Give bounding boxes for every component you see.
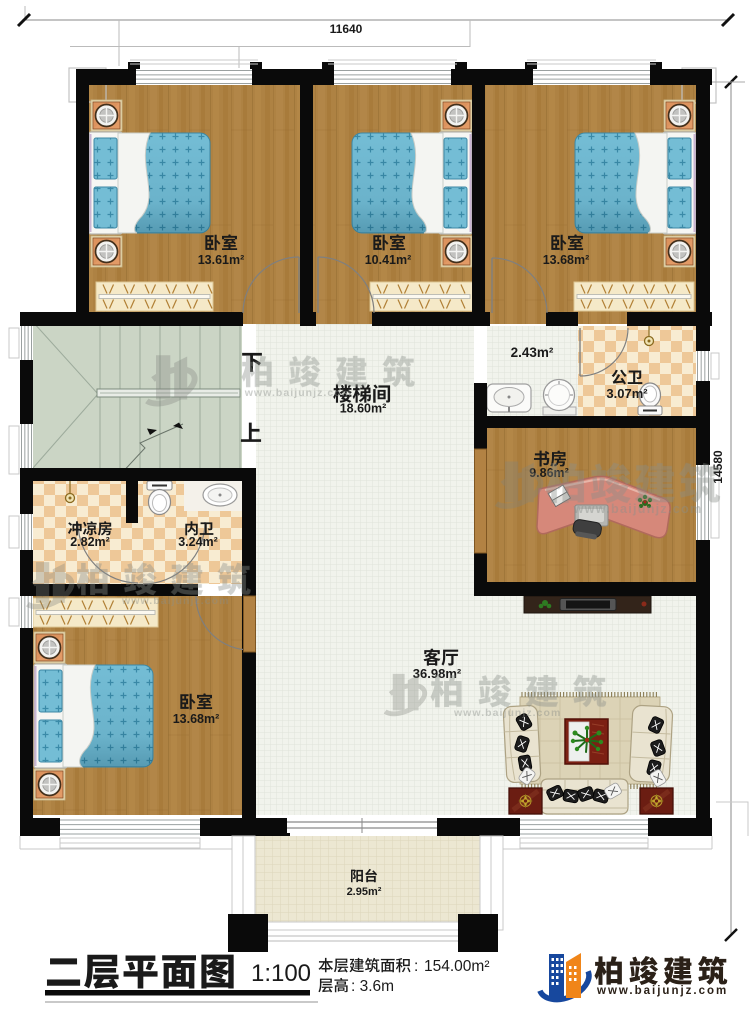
svg-text:3.07m²: 3.07m² bbox=[606, 386, 648, 401]
svg-text:13.68m²: 13.68m² bbox=[543, 253, 590, 267]
svg-text:2.95m²: 2.95m² bbox=[347, 886, 382, 898]
svg-text:www.baijunjz.com: www.baijunjz.com bbox=[121, 595, 229, 607]
svg-text:13.61m²: 13.61m² bbox=[198, 253, 245, 267]
svg-text:2.82m²: 2.82m² bbox=[70, 535, 110, 549]
svg-text:2.43m²: 2.43m² bbox=[511, 345, 554, 360]
svg-text:3.24m²: 3.24m² bbox=[178, 535, 218, 549]
svg-text:1:100: 1:100 bbox=[251, 960, 311, 987]
svg-text:: 3.6m: : 3.6m bbox=[351, 978, 394, 995]
svg-text:10.41m²: 10.41m² bbox=[365, 253, 412, 267]
svg-text:154.00m²: 154.00m² bbox=[424, 958, 489, 975]
svg-text:www.baijunjz.com: www.baijunjz.com bbox=[453, 707, 561, 719]
svg-text::: : bbox=[414, 958, 418, 975]
svg-text:18.60m²: 18.60m² bbox=[340, 402, 387, 416]
svg-text:www.baijunjz.com: www.baijunjz.com bbox=[596, 985, 728, 997]
svg-text:www.baijunjz.com: www.baijunjz.com bbox=[573, 502, 703, 516]
svg-text:www.baijunjz.com: www.baijunjz.com bbox=[244, 387, 352, 399]
svg-text:13.68m²: 13.68m² bbox=[173, 712, 220, 726]
svg-text:11640: 11640 bbox=[330, 22, 363, 36]
